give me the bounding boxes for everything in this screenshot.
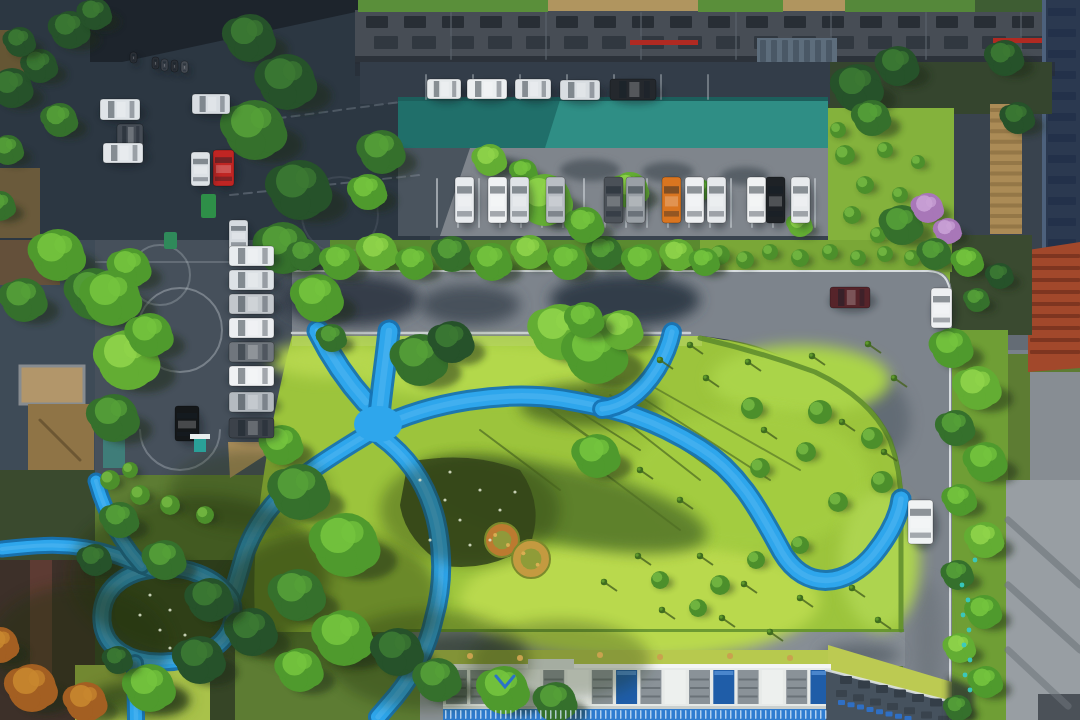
tree-highlight xyxy=(83,687,97,701)
stripe-ticks xyxy=(770,710,772,719)
stripe-ticks xyxy=(680,710,682,719)
tree-highlight xyxy=(869,105,882,118)
flower-dot xyxy=(506,543,510,547)
roof-ac-units xyxy=(366,16,388,28)
car-roof xyxy=(232,233,245,240)
stripe-ticks xyxy=(445,710,447,719)
roof-dividers xyxy=(640,12,642,60)
car-windshield xyxy=(664,186,679,193)
stripe-ticks xyxy=(460,710,462,719)
parking-stall-lines xyxy=(436,178,438,228)
car-roof xyxy=(484,82,493,96)
basketball-hoop xyxy=(194,438,206,452)
car-rear-window xyxy=(793,211,808,217)
tree-highlight xyxy=(303,243,314,254)
pergola-slats xyxy=(990,172,1022,176)
car-windshield xyxy=(238,344,245,360)
shared-bike xyxy=(960,583,965,588)
stripe-ticks xyxy=(525,710,527,719)
car-roof xyxy=(750,196,763,206)
slate-skylights xyxy=(870,699,881,706)
sapling-top xyxy=(745,359,749,363)
slate-skylights xyxy=(904,707,915,714)
slate-skylights xyxy=(921,712,932,719)
panel-line xyxy=(690,687,709,689)
car-rear-window xyxy=(687,211,702,217)
car-windshield xyxy=(238,368,245,384)
grass-strip xyxy=(845,0,975,12)
stripe-ticks xyxy=(565,710,567,719)
slate-skylights xyxy=(938,716,949,720)
tree-highlight xyxy=(314,280,331,297)
car-roof xyxy=(133,57,134,59)
tree-highlight xyxy=(246,20,263,37)
stripe-ticks xyxy=(665,710,667,719)
car-rear-window xyxy=(452,81,456,97)
tree-highlight xyxy=(375,238,388,251)
car-windshield xyxy=(910,509,931,516)
tree-highlight xyxy=(341,521,363,543)
bush-highlight xyxy=(162,497,173,508)
stripe-ticks xyxy=(545,710,547,719)
tree-highlight xyxy=(983,447,997,461)
stripe-ticks xyxy=(765,710,767,719)
parking-stall-lines xyxy=(707,74,709,100)
bush-highlight xyxy=(748,552,758,562)
car-windshield xyxy=(238,420,245,436)
slate-skylights xyxy=(858,681,870,689)
sapling-top xyxy=(637,467,641,471)
roof-ac-units xyxy=(670,16,692,28)
stripe-ticks xyxy=(625,710,627,719)
tree-highlight xyxy=(449,241,462,254)
stripe-ticks xyxy=(810,710,812,719)
stripe-ticks xyxy=(485,710,487,719)
slate-skylights xyxy=(930,699,942,707)
car-roof xyxy=(164,64,165,67)
car-rear-window xyxy=(497,81,502,97)
tree-highlight xyxy=(926,197,937,208)
bush-highlight xyxy=(844,207,854,217)
roof-ac-units xyxy=(450,36,474,49)
car-windshield xyxy=(173,62,176,64)
car-roof xyxy=(629,82,639,97)
car-roof xyxy=(155,62,156,65)
shared-bike xyxy=(963,673,968,678)
stripe-ticks xyxy=(470,710,472,719)
sapling-top xyxy=(719,615,723,619)
tree-highlight xyxy=(522,162,531,171)
bush-highlight xyxy=(830,494,841,505)
tree-highlight xyxy=(248,614,265,631)
car-rear-window xyxy=(749,211,764,217)
shared-bike xyxy=(968,658,973,663)
stripe-ticks xyxy=(570,710,572,719)
bush-highlight xyxy=(905,251,914,260)
car-windshield xyxy=(132,54,135,56)
tree-highlight xyxy=(116,650,126,660)
tree-highlight xyxy=(703,252,713,262)
tree-highlight xyxy=(394,634,411,651)
car-rear-window xyxy=(220,96,225,112)
panel-line xyxy=(739,679,758,681)
slate-skylights xyxy=(887,703,898,710)
car-windshield xyxy=(238,272,245,288)
tree-highlight xyxy=(956,698,965,707)
sapling-top xyxy=(741,581,745,585)
pergola-slats xyxy=(990,193,1022,197)
stripe-ticks xyxy=(645,710,647,719)
stripe-ticks xyxy=(780,710,782,719)
stripe-ticks xyxy=(585,710,587,719)
blue-roof-glyphs xyxy=(867,707,874,712)
shed-ridges xyxy=(771,40,777,62)
car-rear-window xyxy=(133,145,138,161)
tree-highlight xyxy=(488,148,499,159)
car-roof xyxy=(248,321,258,335)
car-windshield xyxy=(434,81,439,97)
bush-highlight xyxy=(893,188,902,197)
stripe-ticks xyxy=(695,710,697,719)
roof-dividers xyxy=(925,12,927,60)
car-rear-window xyxy=(709,211,724,217)
tree-highlight xyxy=(379,136,394,151)
bush-highlight xyxy=(912,156,920,164)
road-shadow xyxy=(420,285,520,325)
blue-path-junction xyxy=(354,406,402,442)
panel-line xyxy=(641,696,660,698)
bush-highlight xyxy=(851,251,860,260)
stripe-ticks xyxy=(455,710,457,719)
pergola-slats xyxy=(990,203,1022,207)
shared-bike xyxy=(967,628,972,633)
panel-line xyxy=(641,687,660,689)
verge-patch xyxy=(597,652,603,658)
bush-highlight xyxy=(197,507,207,517)
car-roof xyxy=(794,196,807,206)
stripe-ticks xyxy=(815,710,817,719)
bush-highlight xyxy=(712,577,723,588)
tree-highlight xyxy=(337,249,350,262)
stripe-ticks xyxy=(580,710,582,719)
planting-speck xyxy=(183,633,186,636)
car-windshield xyxy=(238,320,245,336)
pergola-slats xyxy=(990,225,1022,229)
verge-patch xyxy=(787,655,793,661)
car-rear-window xyxy=(136,126,139,144)
car-rear-window xyxy=(163,68,166,69)
tree-highlight xyxy=(297,654,312,669)
pergola-slats xyxy=(990,140,1022,144)
car-windshield xyxy=(619,81,626,98)
tree-highlight xyxy=(146,670,163,687)
pergola-slats xyxy=(990,214,1022,218)
verge-patch xyxy=(657,654,663,660)
blue-roof-glyphs xyxy=(838,700,845,705)
stripe-ticks xyxy=(740,710,742,719)
verge-patch xyxy=(727,653,733,659)
building-windows xyxy=(1048,50,1076,58)
slate-skylights xyxy=(912,694,924,702)
stripe-ticks xyxy=(500,710,502,719)
building-windows xyxy=(1048,176,1076,184)
sapling-top xyxy=(839,419,843,423)
rust-roof-ridges xyxy=(1030,350,1080,354)
stripe-ticks xyxy=(575,710,577,719)
car-rear-window xyxy=(542,81,546,97)
tree-highlight xyxy=(975,372,990,387)
building-windows xyxy=(1048,155,1076,163)
stripe-ticks xyxy=(710,710,712,719)
car-windshield xyxy=(231,226,246,231)
car-roof xyxy=(248,297,258,311)
panel-line xyxy=(690,696,709,698)
tree-highlight xyxy=(18,31,29,42)
shed-ridges xyxy=(826,40,832,62)
car-windshield xyxy=(548,186,563,193)
stripe-ticks xyxy=(805,710,807,719)
rust-roof-ridges xyxy=(1030,314,1080,318)
car-rear-window xyxy=(512,211,527,217)
roof-panel-white xyxy=(665,670,686,704)
tree-highlight xyxy=(899,210,913,224)
tree-highlight xyxy=(67,16,80,29)
car-windshield xyxy=(793,186,808,193)
planting-speck xyxy=(448,470,451,473)
roof-ac-units xyxy=(1012,16,1034,28)
building-windows xyxy=(1048,134,1076,142)
car-windshield xyxy=(933,296,950,302)
red-roof-pipe xyxy=(630,40,698,45)
car-roof xyxy=(248,395,258,409)
shed-ridges xyxy=(760,40,766,62)
bush-highlight xyxy=(878,143,887,152)
car-windshield xyxy=(183,63,186,65)
car-roof xyxy=(629,196,642,206)
car-roof xyxy=(530,82,538,96)
building-windows xyxy=(1048,29,1076,37)
car-rear-window xyxy=(262,394,267,410)
stripe-ticks xyxy=(595,710,597,719)
panel-line xyxy=(787,679,806,681)
roof-ac-units xyxy=(936,16,958,28)
pergola-slats xyxy=(990,182,1022,186)
car-windshield xyxy=(838,289,844,306)
stripe-ticks xyxy=(685,710,687,719)
car-roof xyxy=(128,127,134,143)
stripe-ticks xyxy=(640,710,642,719)
tree-highlight xyxy=(127,253,141,267)
tree-highlight xyxy=(982,527,995,540)
panel-line xyxy=(787,696,806,698)
stripe-ticks xyxy=(760,710,762,719)
pergola-slats xyxy=(990,150,1022,154)
tree-highlight xyxy=(895,51,909,65)
planting-speck xyxy=(168,646,171,649)
flower-dot xyxy=(521,551,525,555)
tree-highlight xyxy=(207,584,222,599)
stripe-ticks xyxy=(820,710,822,719)
planting-speck xyxy=(148,593,151,596)
sapling-top xyxy=(797,595,801,599)
aerial-photo xyxy=(0,0,1080,720)
stripe-ticks xyxy=(825,710,827,719)
car-windshield xyxy=(163,61,166,63)
tree-highlight xyxy=(676,243,687,254)
tree-highlight xyxy=(998,266,1007,275)
car-roof xyxy=(248,369,258,383)
tree-highlight xyxy=(981,599,993,611)
car-windshield xyxy=(457,186,472,193)
car-rear-window xyxy=(768,211,783,217)
stripe-ticks xyxy=(775,710,777,719)
pergola-slats xyxy=(990,161,1022,165)
tree-highlight xyxy=(340,617,360,637)
tree-highlight xyxy=(984,670,995,681)
car-windshield xyxy=(490,186,505,193)
tree-highlight xyxy=(527,239,539,251)
car-rear-window xyxy=(231,242,246,246)
car-roof xyxy=(248,273,258,287)
car-windshield xyxy=(122,126,126,144)
car-windshield xyxy=(200,96,206,112)
stripe-ticks xyxy=(495,710,497,719)
tree-highlight xyxy=(1016,106,1027,117)
stripe-ticks xyxy=(785,710,787,719)
stripe-ticks xyxy=(790,710,792,719)
shared-bike xyxy=(962,643,967,648)
slate-skylights xyxy=(876,685,888,693)
bush-highlight xyxy=(837,147,848,158)
shared-bike xyxy=(966,598,971,603)
slate-skylights xyxy=(840,676,852,684)
car-rear-window xyxy=(457,211,472,217)
tree-highlight xyxy=(1002,45,1015,58)
car-windshield xyxy=(768,186,783,193)
tree-highlight xyxy=(553,687,567,701)
car-roof xyxy=(577,83,586,97)
shed-ridges xyxy=(804,40,810,62)
car-roof xyxy=(491,196,504,206)
planting-speck xyxy=(478,488,481,491)
sapling-top xyxy=(767,629,771,633)
planting-speck xyxy=(458,518,461,521)
car-rear-window xyxy=(910,533,931,538)
green-dumpster xyxy=(164,232,177,249)
car-roof xyxy=(665,196,678,206)
car-windshield xyxy=(749,186,764,193)
car-rear-window xyxy=(183,70,186,71)
stripe-ticks xyxy=(745,710,747,719)
sapling-top xyxy=(635,553,639,557)
car-rear-window xyxy=(933,318,950,323)
tree-highlight xyxy=(108,277,128,297)
stripe-ticks xyxy=(735,710,737,719)
tree-highlight xyxy=(582,212,595,225)
slate-skylights xyxy=(836,690,847,697)
car-rear-window xyxy=(262,296,267,312)
sapling-top xyxy=(761,427,765,431)
car-rear-window xyxy=(606,211,621,217)
bush-highlight xyxy=(831,123,840,132)
planting-speck xyxy=(138,613,141,616)
blue-roof-glyphs xyxy=(905,716,912,720)
car-roof xyxy=(248,345,258,359)
planting-speck xyxy=(468,543,471,546)
blue-roof-glyphs xyxy=(876,709,883,714)
car-windshield xyxy=(108,101,114,118)
car-windshield xyxy=(193,159,208,164)
tree-highlight xyxy=(28,670,45,687)
blue-roof-glyphs xyxy=(895,714,902,719)
car-roof xyxy=(710,196,723,206)
roof-ac-units xyxy=(868,36,892,49)
tree-highlight xyxy=(365,179,378,192)
rust-roof-ridges xyxy=(1030,338,1080,342)
tree-highlight xyxy=(330,328,340,338)
panel-line xyxy=(739,696,758,698)
car-rear-window xyxy=(628,211,643,217)
bush-highlight xyxy=(132,487,143,498)
car-roof xyxy=(248,249,258,263)
sapling-top xyxy=(659,607,663,611)
stripe-ticks xyxy=(515,710,517,719)
slate-skylights xyxy=(853,694,864,701)
verge-patch xyxy=(517,655,523,661)
sapling-top xyxy=(657,357,661,361)
car-windshield xyxy=(687,186,702,193)
stripe-ticks xyxy=(705,710,707,719)
tree-highlight xyxy=(946,221,955,230)
bush-highlight xyxy=(690,600,700,610)
stripe-ticks xyxy=(635,710,637,719)
stripe-ticks xyxy=(755,710,757,719)
car-roof xyxy=(248,421,258,435)
bush-highlight xyxy=(123,463,132,472)
roof-ac-units xyxy=(944,36,968,49)
car-windshield xyxy=(154,59,157,61)
blue-roof-glyphs xyxy=(857,705,864,710)
planting-speck xyxy=(158,628,161,631)
shed-ridges xyxy=(782,40,788,62)
stripe-ticks xyxy=(510,710,512,719)
tree-highlight xyxy=(296,471,316,491)
tree-highlight xyxy=(9,73,23,87)
tree-highlight xyxy=(117,507,130,520)
stripe-ticks xyxy=(465,710,467,719)
car-windshield xyxy=(238,248,245,264)
roof-ac-units xyxy=(784,16,806,28)
stripe-ticks xyxy=(530,710,532,719)
stripe-ticks xyxy=(660,710,662,719)
car-roof xyxy=(120,146,129,160)
roof-ac-units xyxy=(746,16,768,28)
car-rear-window xyxy=(262,344,267,360)
flower-dot xyxy=(493,533,497,537)
dirt-strip xyxy=(783,0,845,11)
planting-speck xyxy=(488,538,491,541)
car-windshield xyxy=(238,296,245,312)
roof-panel-white xyxy=(762,670,783,704)
stripe-ticks xyxy=(675,710,677,719)
shed-ridges xyxy=(815,40,821,62)
sapling-top xyxy=(677,497,681,501)
sapling-top xyxy=(687,342,691,346)
sapling-top xyxy=(601,579,605,583)
sapling-top xyxy=(891,375,895,379)
car-roof xyxy=(911,518,930,528)
car-roof xyxy=(441,82,448,96)
